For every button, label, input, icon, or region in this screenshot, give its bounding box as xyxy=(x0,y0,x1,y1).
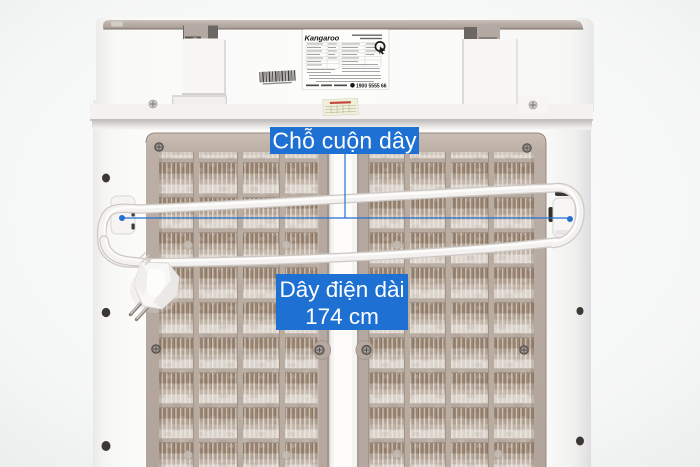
svg-text:Chỗ cuộn dây: Chỗ cuộn dây xyxy=(272,128,417,154)
svg-text:Dây điện dài: Dây điện dài xyxy=(279,277,404,302)
svg-text:1900 5555 66: 1900 5555 66 xyxy=(356,84,387,90)
svg-text:174 cm: 174 cm xyxy=(305,304,379,329)
svg-text:Kangaroo: Kangaroo xyxy=(305,34,340,43)
